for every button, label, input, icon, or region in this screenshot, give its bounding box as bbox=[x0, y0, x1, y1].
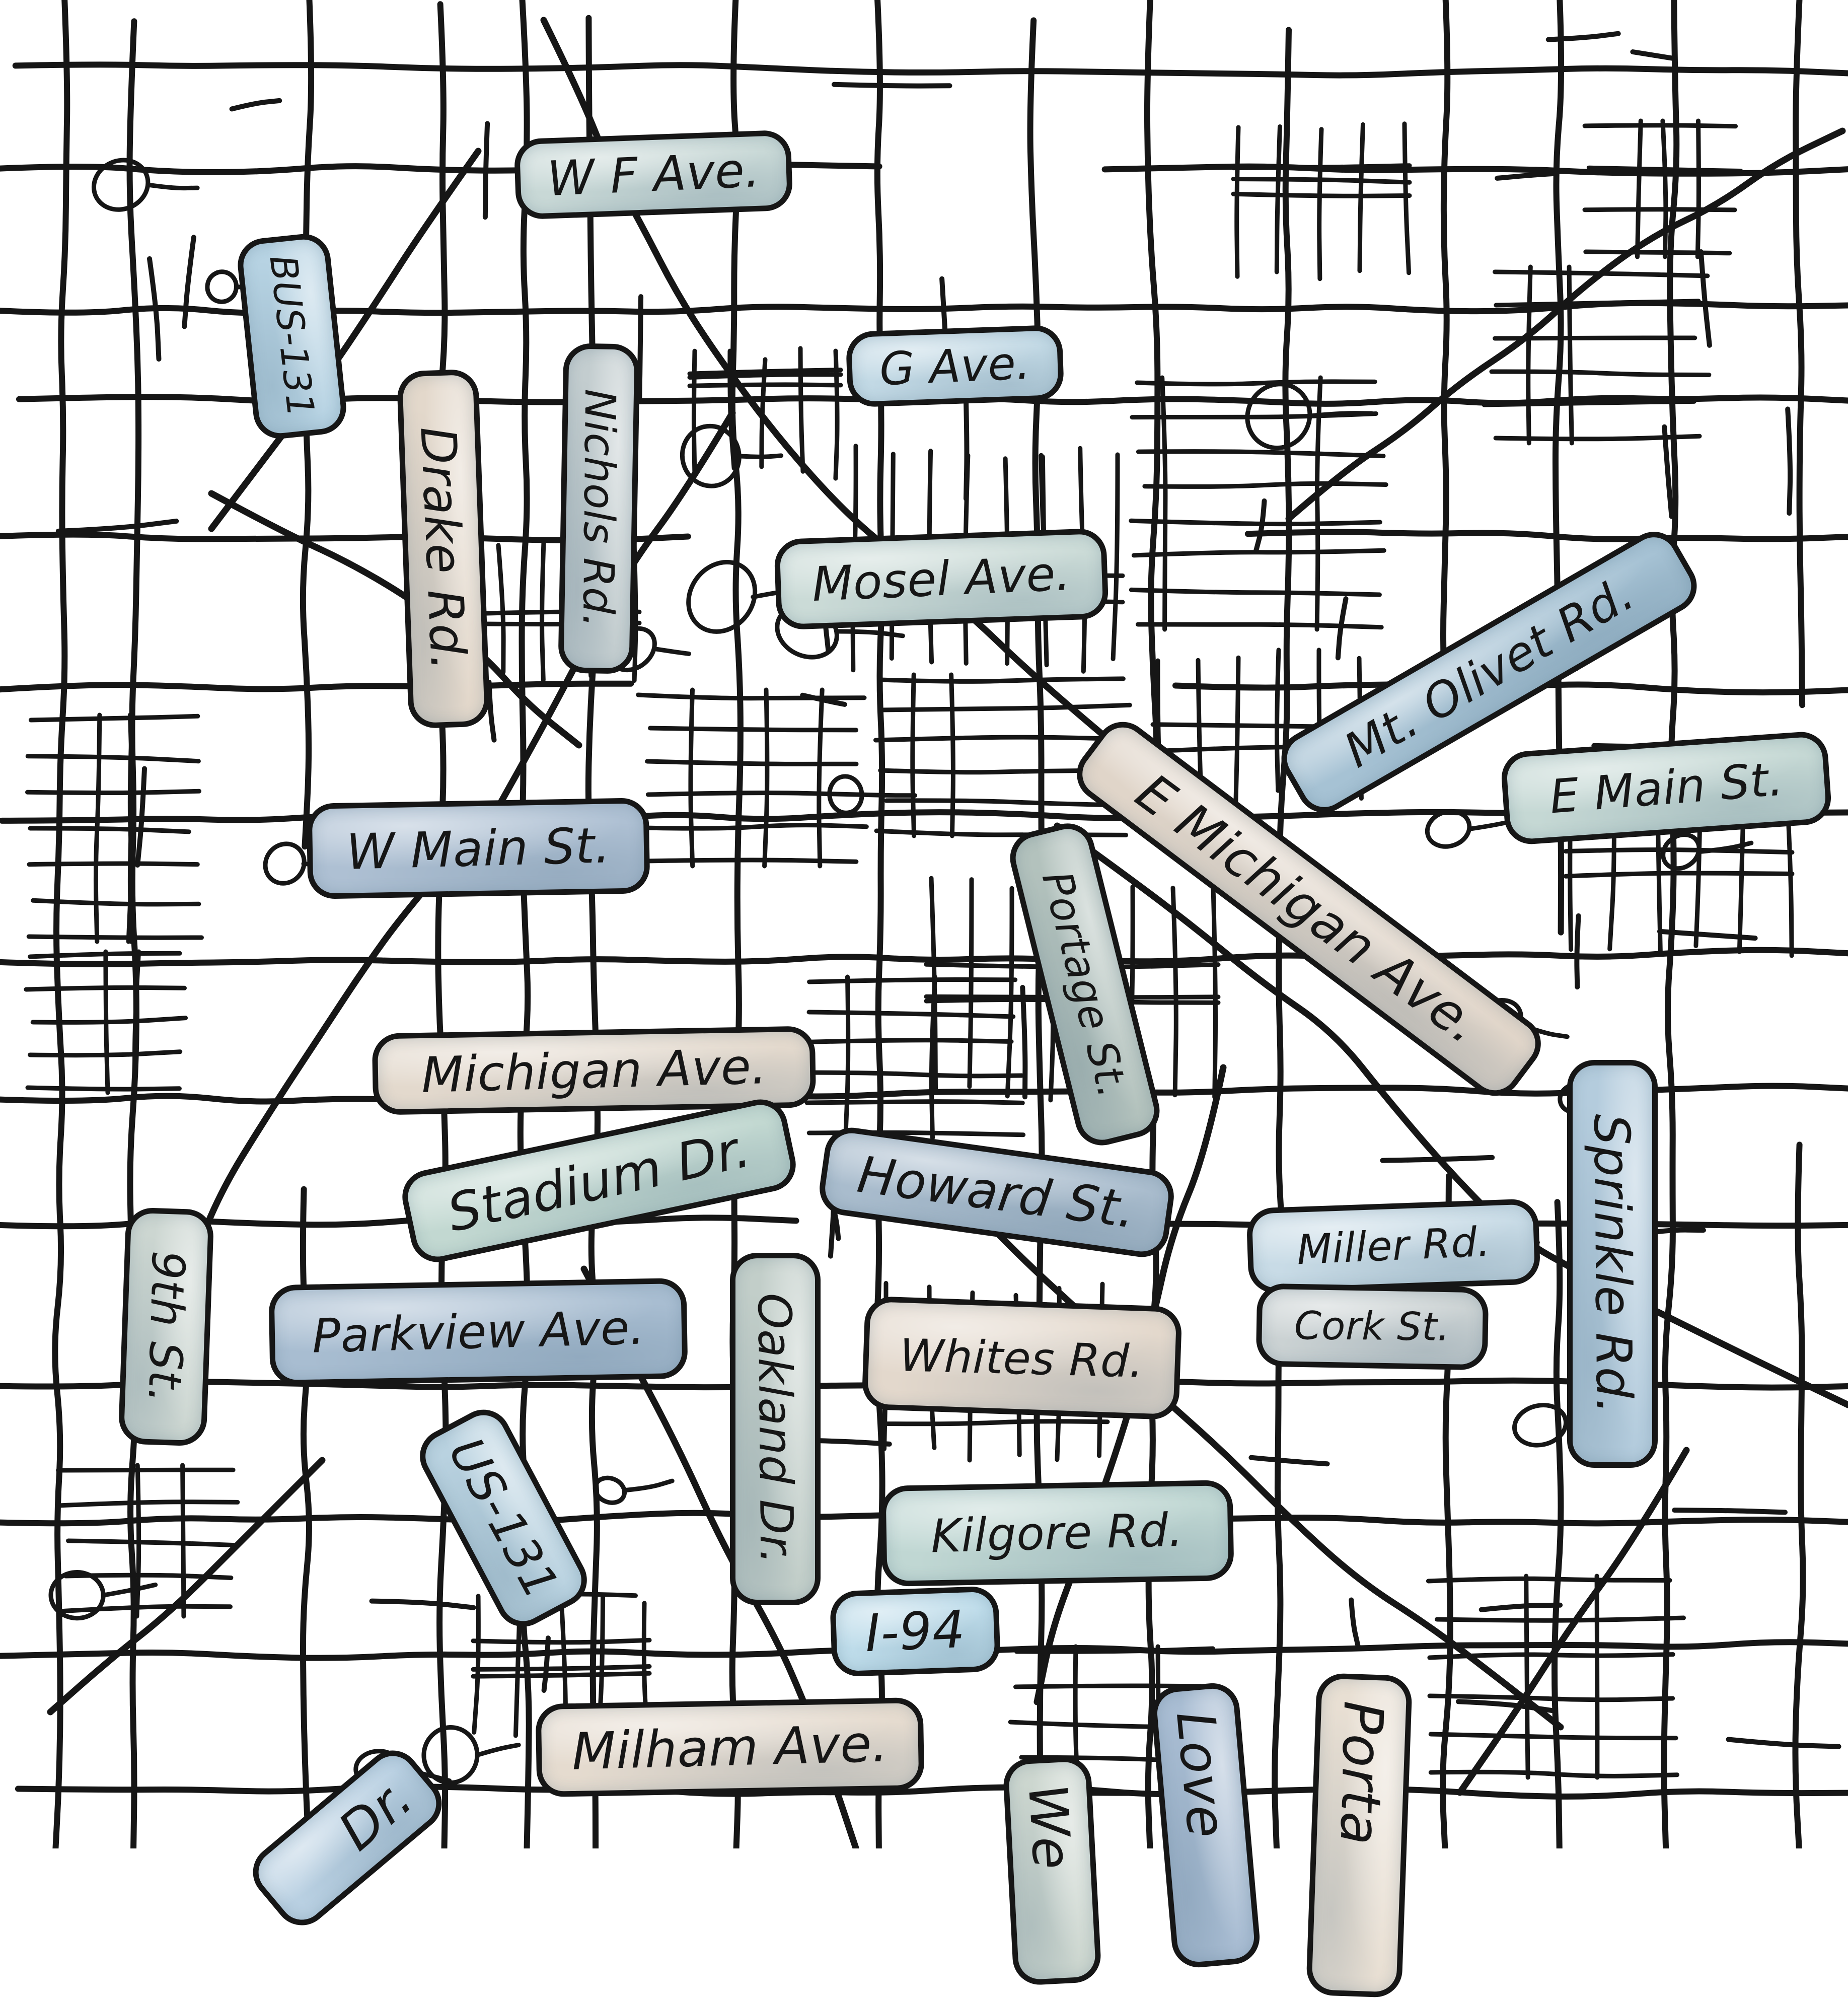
street-label-text: Howard St. bbox=[854, 1145, 1139, 1240]
street-label: I-94 bbox=[830, 1586, 1001, 1677]
street-label: Milham Ave. bbox=[535, 1697, 924, 1797]
street-labels: W F Ave. BUS-131 Drake Rd. Nichols Rd. G… bbox=[0, 0, 1848, 1848]
street-label: Miller Rd. bbox=[1246, 1198, 1541, 1294]
street-label-text: Stadium Dr. bbox=[442, 1118, 756, 1244]
street-label: US-131 bbox=[410, 1400, 597, 1636]
street-label: BUS-131 bbox=[235, 231, 349, 441]
street-label-text: Miller Rd. bbox=[1296, 1219, 1491, 1274]
street-label-text: Porta bbox=[1328, 1700, 1394, 1846]
street-label: Whites Rd. bbox=[861, 1296, 1182, 1420]
street-label-text: 9th St. bbox=[138, 1250, 195, 1403]
street-label: Nichols Rd. bbox=[558, 343, 640, 674]
street-label-text: We bbox=[1016, 1782, 1083, 1872]
street-label: E Main St. bbox=[1500, 730, 1832, 846]
street-label: G Ave. bbox=[846, 325, 1065, 408]
street-label: We bbox=[1002, 1755, 1102, 1986]
street-label-text: Cork St. bbox=[1294, 1304, 1450, 1350]
street-label-text: Love bbox=[1164, 1708, 1238, 1840]
map-poster: W F Ave. BUS-131 Drake Rd. Nichols Rd. G… bbox=[0, 0, 1848, 1848]
street-label: 9th St. bbox=[118, 1207, 214, 1447]
street-label: Howard St. bbox=[816, 1124, 1177, 1261]
street-label: Love bbox=[1149, 1681, 1262, 1969]
street-label-text: Nichols Rd. bbox=[573, 389, 625, 628]
street-label-text: Dr. bbox=[327, 1767, 424, 1863]
street-label-text: Portage St. bbox=[1032, 866, 1137, 1102]
street-label-text: Oakland Dr. bbox=[748, 1293, 803, 1565]
street-label: Kilgore Rd. bbox=[880, 1480, 1234, 1587]
street-label-text: Parkview Ave. bbox=[311, 1300, 645, 1363]
street-label: Drake Rd. bbox=[397, 369, 491, 729]
street-label-text: Mosel Ave. bbox=[811, 546, 1072, 612]
street-label: Parkview Ave. bbox=[268, 1278, 688, 1386]
street-label-text: BUS-131 bbox=[261, 253, 323, 419]
street-label-text: US-131 bbox=[438, 1429, 569, 1607]
street-label-text: Whites Rd. bbox=[899, 1329, 1145, 1388]
street-label: Mosel Ave. bbox=[774, 528, 1109, 630]
street-label-text: Sprinkle Rd. bbox=[1582, 1113, 1642, 1414]
street-label: Dr. bbox=[242, 1739, 453, 1936]
street-label-text: W Main St. bbox=[345, 817, 611, 881]
street-label: Porta bbox=[1306, 1673, 1413, 1998]
street-label-text: E Main St. bbox=[1547, 752, 1785, 824]
street-label-text: Drake Rd. bbox=[410, 425, 477, 672]
street-label-text: G Ave. bbox=[878, 336, 1031, 396]
street-label-text: Kilgore Rd. bbox=[930, 1504, 1184, 1563]
street-label-text: I-94 bbox=[864, 1599, 967, 1664]
street-label: W Main St. bbox=[306, 798, 650, 899]
street-label: Cork St. bbox=[1256, 1283, 1489, 1370]
street-label: W F Ave. bbox=[513, 129, 793, 220]
street-label: Oakland Dr. bbox=[730, 1253, 821, 1605]
street-label: Sprinkle Rd. bbox=[1567, 1060, 1658, 1468]
street-label-text: W F Ave. bbox=[546, 142, 761, 207]
street-label: Stadium Dr. bbox=[397, 1094, 800, 1267]
street-label-text: Milham Ave. bbox=[571, 1714, 889, 1781]
street-label-text: Michigan Ave. bbox=[420, 1038, 767, 1104]
street-label: Portage St. bbox=[1004, 818, 1165, 1151]
